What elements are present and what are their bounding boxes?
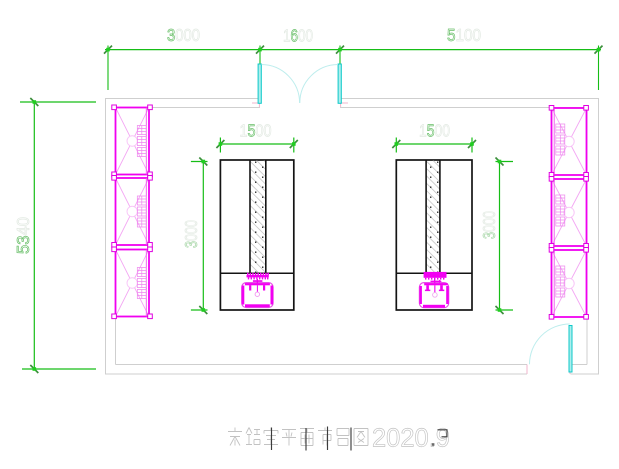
svg-text:3000: 3000 — [479, 211, 499, 239]
svg-text:3000: 3000 — [167, 25, 200, 45]
svg-text:1500: 1500 — [419, 121, 450, 141]
svg-text:2020.9: 2020.9 — [372, 423, 450, 453]
svg-text:5100: 5100 — [447, 25, 481, 45]
svg-text:5340: 5340 — [13, 217, 33, 254]
svg-text:1500: 1500 — [240, 121, 272, 141]
svg-text:1600: 1600 — [283, 26, 313, 46]
svg-text:3000: 3000 — [181, 220, 201, 248]
